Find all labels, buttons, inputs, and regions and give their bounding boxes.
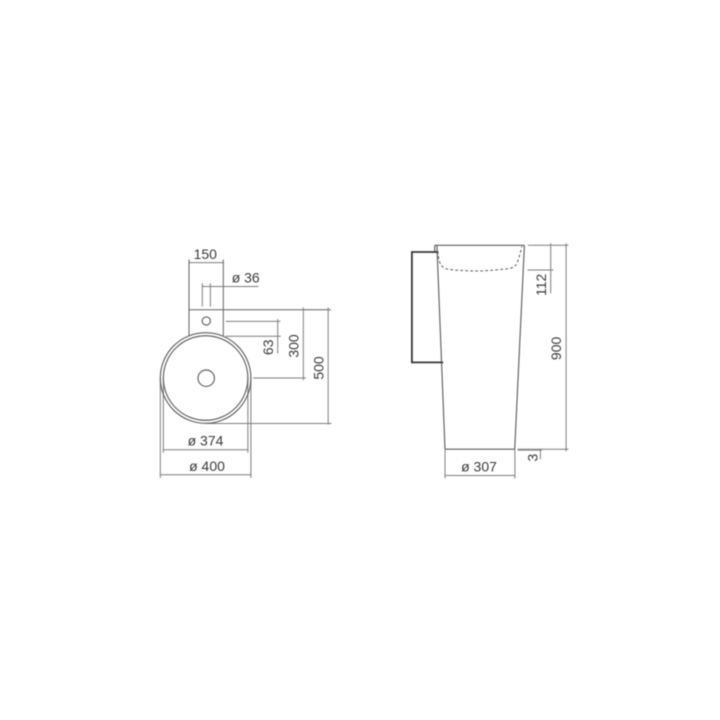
svg-text:ø 374: ø 374 bbox=[188, 433, 224, 449]
svg-text:112: 112 bbox=[533, 274, 549, 297]
svg-text:ø 400: ø 400 bbox=[189, 458, 225, 474]
svg-text:900: 900 bbox=[548, 337, 564, 361]
svg-text:63: 63 bbox=[260, 339, 276, 355]
svg-text:500: 500 bbox=[311, 356, 327, 380]
svg-text:3: 3 bbox=[524, 453, 540, 461]
svg-text:ø 307: ø 307 bbox=[461, 458, 497, 474]
svg-text:300: 300 bbox=[285, 334, 301, 358]
svg-text:150: 150 bbox=[194, 246, 218, 262]
svg-text:ø 36: ø 36 bbox=[232, 270, 260, 286]
